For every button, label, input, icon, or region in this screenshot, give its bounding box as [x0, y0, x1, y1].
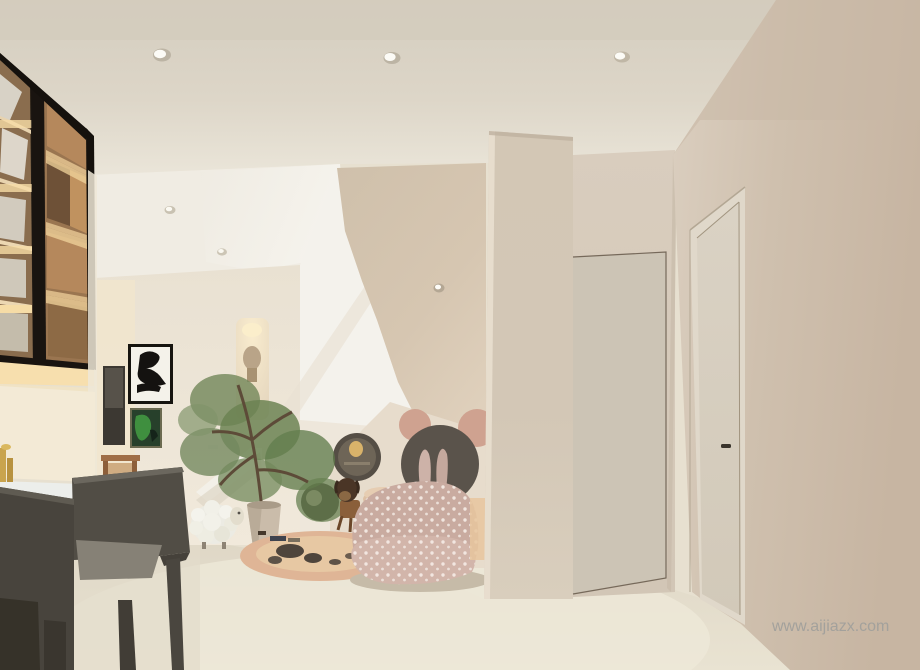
svg-text:www.aijiazx.com: www.aijiazx.com [771, 618, 889, 635]
